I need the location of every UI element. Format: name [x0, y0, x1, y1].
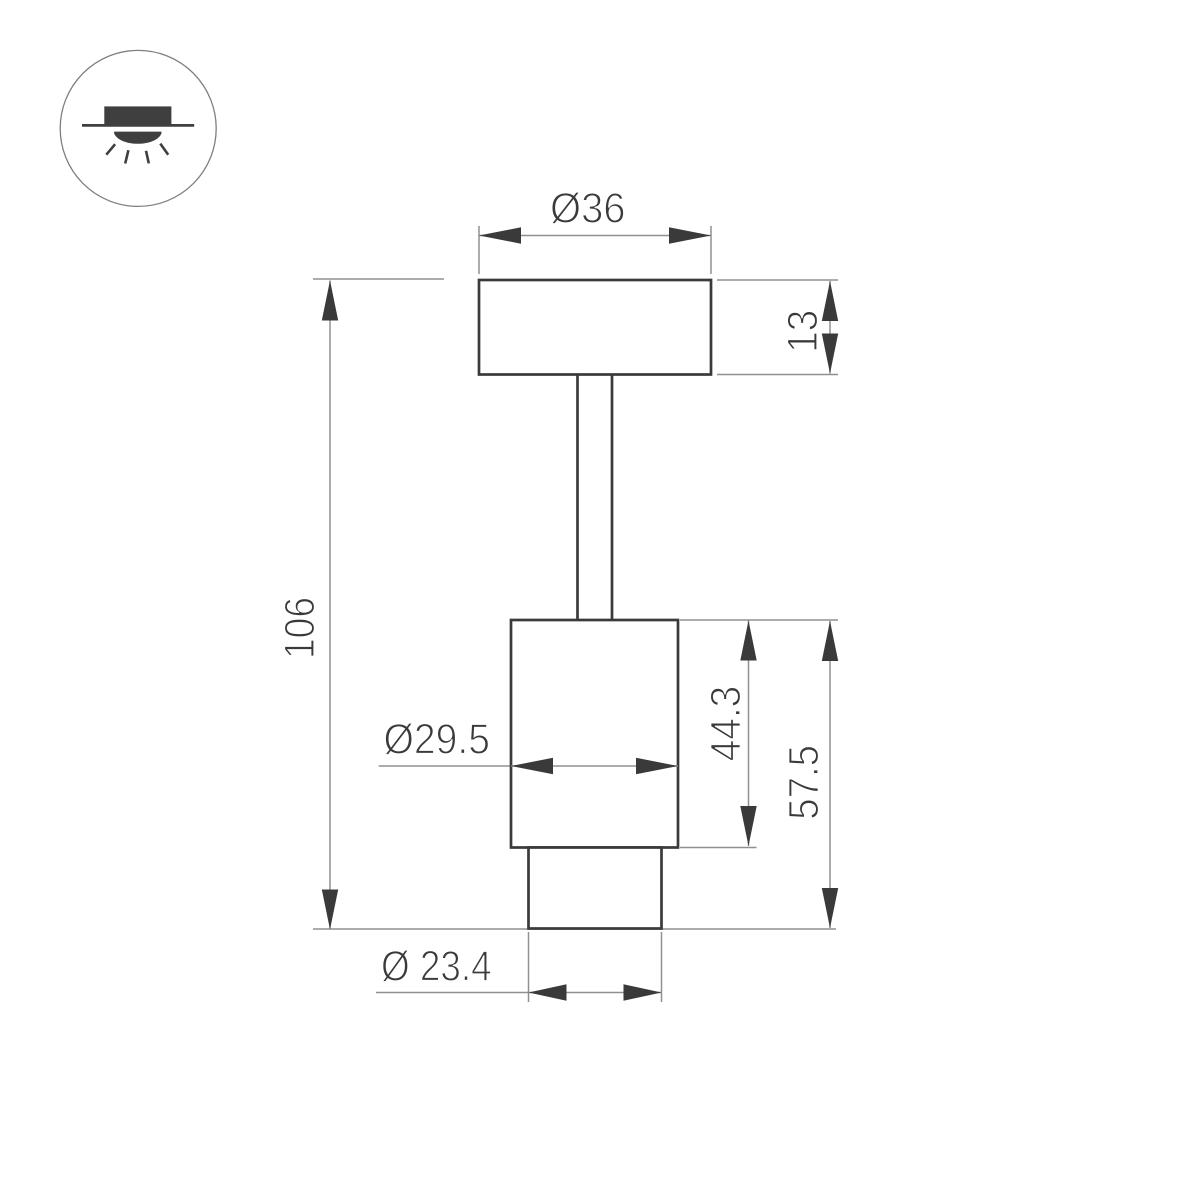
svg-text:Ø 23.4: Ø 23.4 [381, 943, 492, 991]
svg-text:57.5: 57.5 [780, 745, 828, 820]
svg-text:Ø36: Ø36 [550, 185, 626, 233]
svg-text:106: 106 [276, 597, 324, 659]
svg-text:Ø29.5: Ø29.5 [384, 716, 491, 764]
svg-text:13: 13 [779, 310, 827, 353]
svg-text:44.3: 44.3 [702, 686, 750, 762]
